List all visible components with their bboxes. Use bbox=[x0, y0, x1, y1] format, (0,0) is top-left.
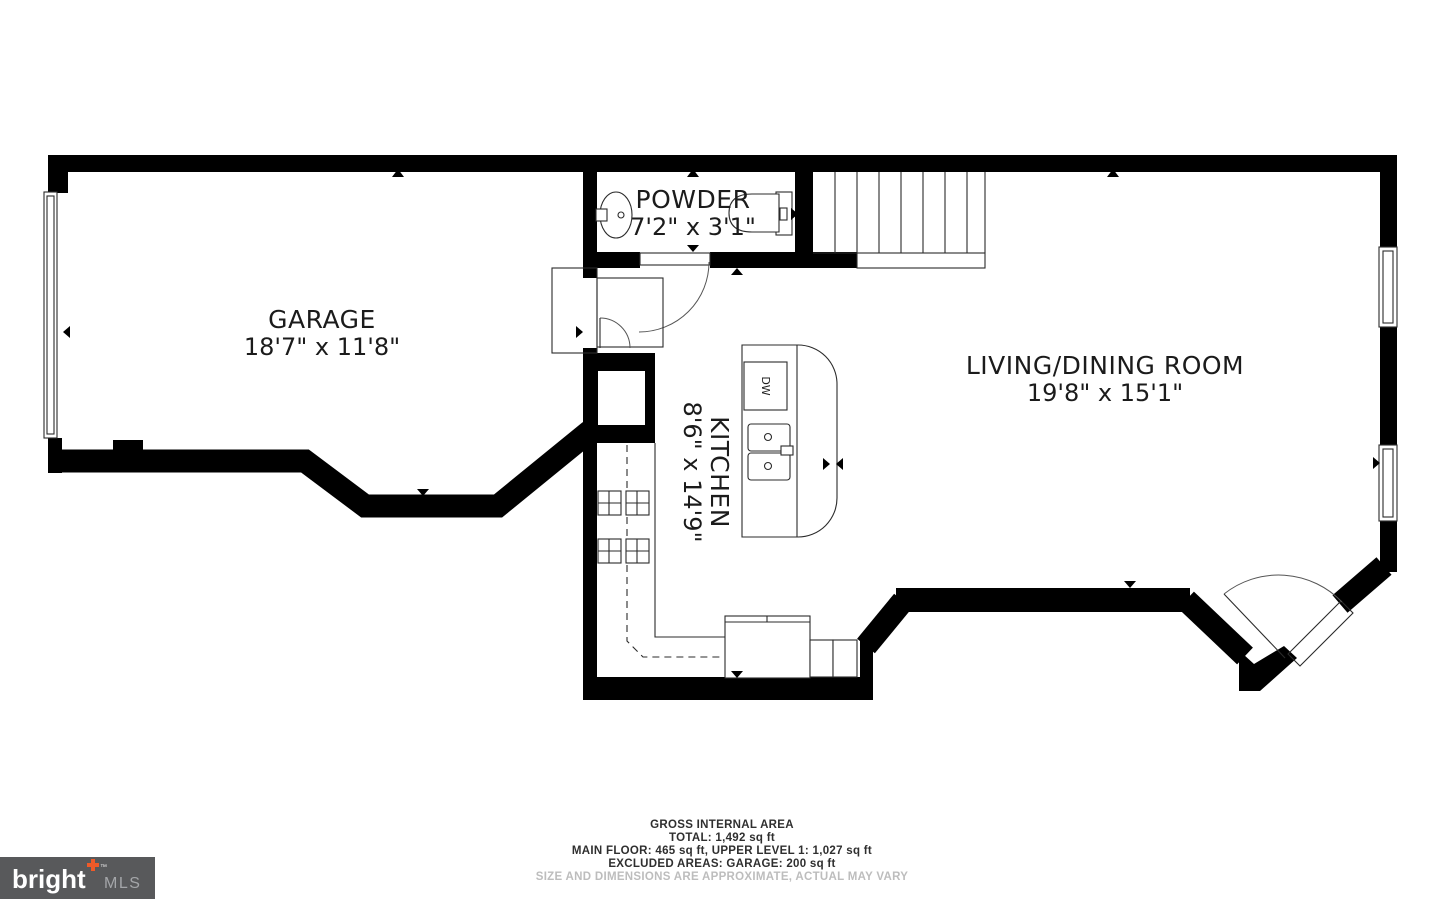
footer-line-4: EXCLUDED AREAS: GARAGE: 200 sq ft bbox=[608, 858, 835, 870]
wall-arrow-icon bbox=[576, 326, 583, 338]
sink bbox=[596, 192, 632, 238]
logo-suffix-text: MLS bbox=[104, 875, 141, 892]
kitchen-island bbox=[742, 345, 837, 537]
logo-tm: ™ bbox=[100, 864, 107, 871]
brand-logo: bright ™ MLS bbox=[0, 857, 155, 899]
living-dining-dims: 19'8" x 15'1" bbox=[1027, 379, 1183, 407]
wall-kitchen-bottom bbox=[583, 677, 873, 700]
footer-disclaimer: SIZE AND DIMENSIONS ARE APPROXIMATE, ACT… bbox=[536, 871, 909, 883]
footer-line-1: GROSS INTERNAL AREA bbox=[650, 819, 794, 831]
floor-plan-svg: GARAGE 18'7" x 11'8" POWDER 7'2" x 3'1" … bbox=[0, 0, 1440, 899]
stove bbox=[598, 491, 649, 563]
wall-stairs-stub bbox=[795, 252, 857, 268]
garage-dims: 18'7" x 11'8" bbox=[244, 333, 400, 361]
wall-entry-upper bbox=[1340, 566, 1384, 604]
powder-dims: 7'2" x 3'1" bbox=[630, 213, 756, 241]
closet-interior bbox=[598, 371, 645, 425]
wall-corner-tl bbox=[48, 155, 68, 193]
wall-diagonal-right bbox=[1186, 600, 1245, 656]
footer-line-3: MAIN FLOOR: 465 sq ft, UPPER LEVEL 1: 1,… bbox=[572, 845, 872, 857]
kitchen-label: KITCHEN bbox=[705, 416, 734, 528]
refrigerator bbox=[725, 616, 810, 678]
wall-arrow-icon bbox=[1124, 581, 1136, 588]
powder-label: POWDER bbox=[636, 185, 751, 214]
kitchen-dims: 8'6" x 14'9" bbox=[678, 401, 706, 542]
wall-bump bbox=[113, 440, 143, 451]
living-dining-label: LIVING/DINING ROOM bbox=[966, 351, 1244, 380]
floor-plan-page: GARAGE 18'7" x 11'8" POWDER 7'2" x 3'1" … bbox=[0, 0, 1440, 899]
window bbox=[1379, 247, 1397, 327]
garage-entry-door bbox=[552, 268, 663, 353]
wall-arrow-icon bbox=[687, 245, 699, 252]
dishwasher-label: DW bbox=[759, 376, 772, 395]
footer-line-2: TOTAL: 1,492 sq ft bbox=[669, 832, 775, 844]
wall-living-bottom bbox=[896, 588, 1190, 612]
wall-stairs-left bbox=[795, 155, 813, 268]
wall-arrow-icon bbox=[731, 268, 743, 275]
powder-door bbox=[639, 253, 710, 332]
wall-arrow-icon bbox=[63, 326, 70, 338]
garage-label: GARAGE bbox=[268, 305, 376, 334]
stairs-landing bbox=[857, 253, 985, 268]
garage-door bbox=[44, 192, 57, 438]
logo-brand-text: bright bbox=[12, 864, 86, 894]
wall-right-lower bbox=[1380, 519, 1397, 572]
wall-right-middle bbox=[1380, 325, 1397, 447]
wall-right-upper bbox=[1380, 155, 1397, 249]
wall-top bbox=[48, 155, 1397, 172]
cabinets bbox=[810, 640, 857, 677]
wall-powder-bottom-left bbox=[583, 252, 640, 268]
door-swing-arc bbox=[1224, 575, 1342, 602]
footer: GROSS INTERNAL AREA TOTAL: 1,492 sq ft M… bbox=[536, 819, 909, 883]
window bbox=[1379, 445, 1397, 521]
